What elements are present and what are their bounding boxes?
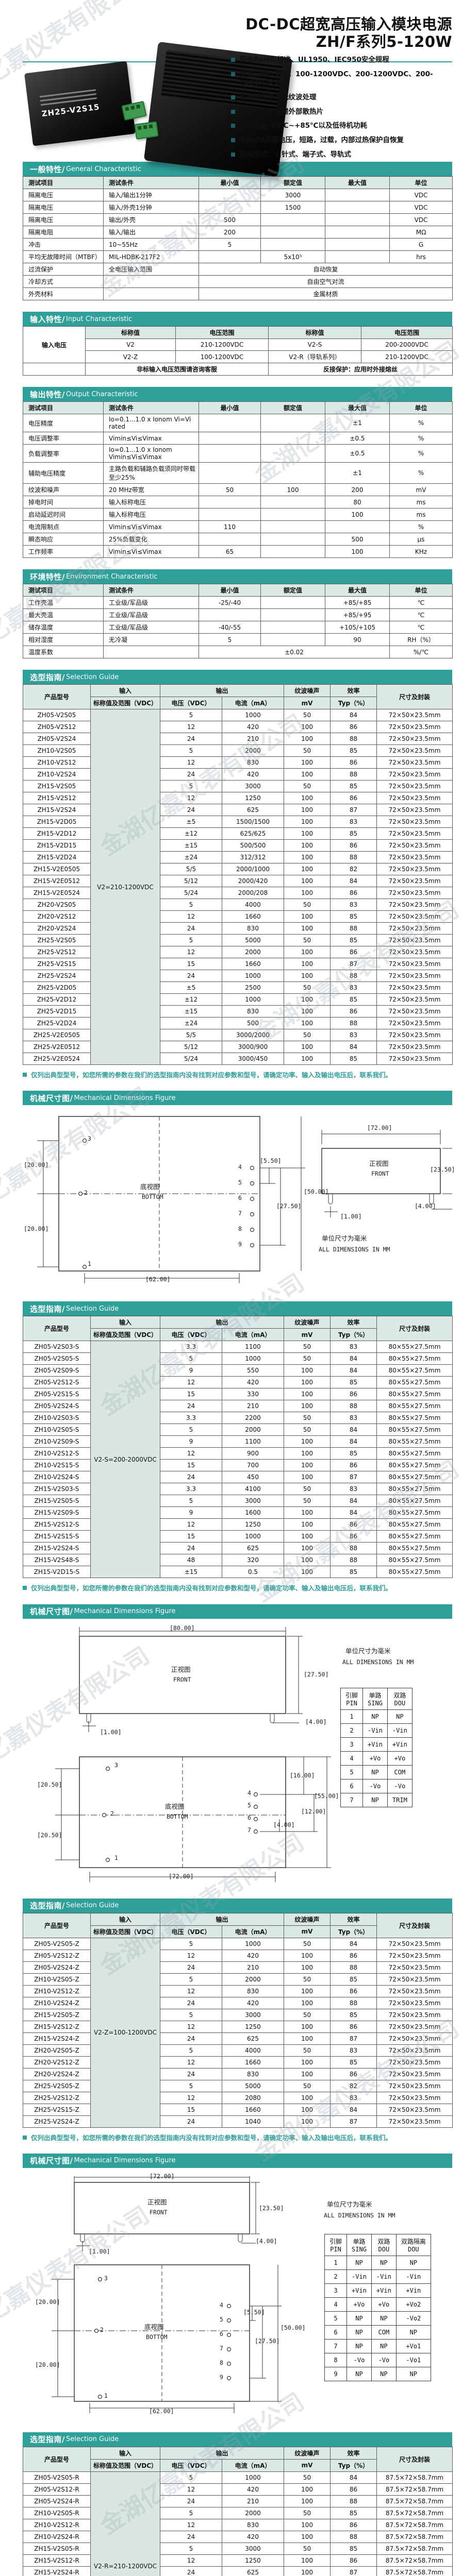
product-row: ZH25-V2D15±158301008672×50×23.5mm (23, 1006, 453, 1018)
table-cell: 输入/外壳1分钟 (104, 201, 199, 214)
table-cell: 15 (160, 1388, 222, 1400)
table-row: 过流保护全电压输入范围自动恢复 (23, 263, 453, 276)
table-cell: 24 (160, 923, 222, 935)
product-row: ZH15-V2S05-R53000508587.5×72×58.7mm (23, 2543, 453, 2554)
table-cell: 830 (222, 757, 284, 769)
table-cell: 12 (160, 2092, 222, 2104)
dim-label: [27.50] (276, 1203, 301, 1210)
table-cell: 12 (160, 946, 222, 958)
table-cell: 320 (222, 1554, 284, 1566)
pin-cell: 8 (325, 2353, 347, 2367)
column-header: 效率 (331, 1913, 377, 1925)
table-cell: 温度系数 (23, 646, 104, 658)
table-cell: 12 (160, 1985, 222, 1997)
column-header: 引脚PIN (325, 2234, 347, 2256)
dim-label: [4.00] (415, 1203, 436, 1210)
section-title-en: Selection Guide (66, 1902, 119, 1909)
column-header: 单位 (390, 402, 453, 414)
pin-row: 9NPNPNP (325, 2367, 431, 2381)
table-cell: 100 (284, 1519, 331, 1531)
pin-cell: 2 (325, 2269, 347, 2283)
model-cell: ZH25-V2D05 (23, 982, 91, 994)
table-row: 启动延迟时间输入标称电压100ms (23, 509, 453, 521)
table-cell: 100 (284, 1543, 331, 1554)
pin-row: 7NPTRIM (341, 1793, 412, 1807)
table-cell: 110 (199, 521, 261, 533)
table-row: 电流限制点Vimin≤Vi≤Vimax110% (23, 521, 453, 533)
table-cell: 87.5×72×58.7mm (377, 2554, 453, 2566)
product-row: ZH15-V2S05-S53000508480×55×27.5mm (23, 1495, 453, 1507)
product-row: ZH05-V2S05-ZV2-Z=100-1200VDC51000508472×… (23, 1938, 453, 1950)
column-header: mV (284, 1329, 331, 1341)
dim-label: 5 (247, 1802, 251, 1809)
table-cell: ±5 (160, 982, 222, 994)
table-cell: 72×50×23.5mm (377, 2104, 453, 2115)
dim-label: 2 (84, 1190, 88, 1196)
feature-text: 自然冷却，无需外部散热片 (240, 108, 323, 116)
table-cell (23, 363, 86, 376)
model-cell: ZH05-V2S03-S (23, 1341, 91, 1353)
column-header: 产品型号 (23, 2447, 91, 2471)
table-cell: 12 (160, 2021, 222, 2032)
table-cell: 88 (331, 1997, 377, 2009)
section-header-output: 输出特性/ Output Characteristic (23, 387, 452, 401)
table-cell: 100 (284, 2021, 331, 2032)
dim-label: [23.50] (430, 1166, 455, 1173)
input-characteristic-table: 输入电压标称值电压范围标称值电压范围V2210-1200VDCV2-S200-2… (23, 326, 453, 376)
dim-label: 正视图 (171, 1666, 191, 1673)
table-cell: 80×55×27.5mm (377, 1460, 453, 1471)
table-cell: ±0.5 (325, 445, 390, 463)
dim-label: FRONT (173, 1676, 191, 1683)
table-cell: 负载调整率 (23, 445, 104, 463)
section-header-input: 输入特性/ Input Characteristic (23, 312, 452, 326)
column-header: 标称值及范围（VDC） (91, 697, 160, 709)
pin-cell: +Vin (396, 2283, 431, 2297)
datasheet-page: DC-DC超宽高压输入模块电源 ZH/F系列5-120W ZH25-V2S15 … (0, 0, 462, 2576)
table-cell: 87.5×72×58.7mm (377, 2495, 453, 2507)
table-cell: V2-S (269, 339, 361, 351)
model-cell: ZH20-V2S12 (23, 911, 91, 923)
section-header-selection-3: 选型指南/ Selection Guide (23, 1899, 452, 1913)
table-row: V2210-1200VDCV2-S200-2000VDC (23, 339, 453, 351)
table-cell: 9 (160, 1365, 222, 1377)
feature-item: 高转换效率和低纹波处理 (231, 93, 454, 102)
table-cell: 88 (331, 733, 377, 745)
table-cell: 1000 (222, 2471, 284, 2483)
table-cell: 5/5 (160, 863, 222, 875)
column-header: 测试条件 (104, 584, 199, 597)
table-cell: 工业级/军品级 (104, 609, 199, 621)
pin-cell: 4 (325, 2297, 347, 2311)
table-cell: 200 (199, 226, 261, 239)
table-cell: ±1 (325, 463, 390, 484)
table-cell: 金属材质 (199, 288, 453, 300)
table-row: 瞬态响应25%负载变化500μs (23, 533, 453, 546)
pin-row: 3+Vin+Vin+Vin (325, 2283, 431, 2297)
table-cell: 72×50×23.5mm (377, 709, 453, 721)
table-cell (199, 533, 261, 546)
table-cell: 72×50×23.5mm (377, 2032, 453, 2044)
table-cell: 12 (160, 911, 222, 923)
dim-label: 9 (238, 1241, 242, 1248)
model-cell: ZH10-V2S24 (23, 769, 91, 781)
table-cell: 5/5 (160, 1029, 222, 1041)
table-row: 电压精度Io=0.1...1.0 x Ionom Vi=Vi rated±1% (23, 414, 453, 432)
dim-label: 4 (238, 1164, 242, 1171)
table-cell: 100 (284, 1460, 331, 1471)
dim-label: [20.00] (35, 2299, 60, 2306)
table-cell: 100 (284, 1566, 331, 1578)
table-cell: ℃ (390, 597, 453, 609)
pin-cell: NP (347, 2339, 372, 2353)
table-cell (325, 189, 390, 201)
model-cell: ZH05-V2S05-R (23, 2471, 91, 2483)
table-cell: 625 (222, 804, 284, 816)
table-cell: 80×55×27.5mm (377, 1554, 453, 1566)
table-cell (261, 546, 325, 558)
table-cell: 85 (331, 2543, 377, 2554)
pin-cell: 6 (325, 2325, 347, 2339)
table-cell: ±12 (160, 994, 222, 1006)
table-cell: 9 (160, 1436, 222, 1448)
table-cell: 100 (284, 721, 331, 733)
table-cell: 隔离电压 (23, 189, 104, 201)
model-cell: ZH15-V2S05-Z (23, 2009, 91, 2021)
dim-label: [20.50] (37, 1832, 62, 1839)
table-cell: 50 (284, 935, 331, 946)
selection-guide-table-4: 产品型号输入输出纹波噪声效率尺寸及封装标称值及范围（VDC）电压（VDC）电流（… (23, 2447, 453, 2576)
table-cell: 72×50×23.5mm (377, 1041, 453, 1053)
table-cell: 80×55×27.5mm (377, 1424, 453, 1436)
model-cell: ZH10-V2S09-S (23, 1436, 91, 1448)
table-cell: 87 (331, 804, 377, 816)
table-cell: 80×55×27.5mm (377, 1543, 453, 1554)
model-cell: ZH20-V2S12-Z (23, 2056, 91, 2068)
table-cell: 83 (331, 1341, 377, 1353)
table-cell: ±0.02 (199, 646, 390, 658)
table-cell: 3000/900 (222, 1041, 284, 1053)
product-row: ZH20-V2S12-Z1216601008572×50×23.5mm (23, 2056, 453, 2068)
table-cell: 50 (284, 1341, 331, 1353)
table-cell: 420 (222, 721, 284, 733)
pin-cell: -Vin (347, 2269, 372, 2283)
model-cell: ZH25-V2S12 (23, 946, 91, 958)
dim-label: [20.50] (37, 1782, 62, 1788)
table-cell (261, 496, 325, 509)
table-cell: 72×50×23.5mm (377, 2044, 453, 2056)
table-cell: 自由空气对流 (199, 276, 453, 288)
table-cell: 88 (331, 1554, 377, 1566)
pin-cell: 6 (341, 1779, 363, 1793)
pin-row: 3+Vin+Vin (341, 1737, 412, 1751)
column-header: 单位 (390, 584, 453, 597)
table-cell: 85 (331, 828, 377, 840)
dim-label: ALL DIMENSIONS IN MM (319, 1246, 390, 1253)
pin-definition-table: 引脚PIN单路SING双路DOU双路隔离DOU1NPNPNP2-Vin-Vin-… (324, 2234, 431, 2381)
pin-cell: +Vo1 (396, 2339, 431, 2353)
table-cell: 2000 (222, 946, 284, 958)
table-cell: 84 (331, 1507, 377, 1519)
table-cell: 100 (284, 2483, 331, 2495)
table-cell: 85 (331, 1566, 377, 1578)
column-header: 效率 (331, 685, 377, 697)
dim-label: 3 (114, 1762, 118, 1769)
table-cell: 72×50×23.5mm (377, 1961, 453, 1973)
pin-cell: NP (396, 2325, 431, 2339)
table-cell: 80×55×27.5mm (377, 1377, 453, 1388)
table-cell: 72×50×23.5mm (377, 2115, 453, 2127)
dim-label: [20.00] (24, 1226, 48, 1232)
table-cell: 86 (331, 2519, 377, 2531)
table-cell: 72×50×23.5mm (377, 911, 453, 923)
table-cell: 1100 (222, 1341, 284, 1353)
table-cell: 全电压输入范围 (104, 263, 199, 276)
table-cell: 87.5×72×58.7mm (377, 2483, 453, 2495)
section-header-mech-3: 机械尺寸图/ Mechanical Dimensions Figure (23, 2154, 452, 2168)
table-cell: 主路负载和辅路负载须同时带载至少25% (104, 463, 199, 484)
product-row: ZH15-V2S48-S483201008880×55×27.5mm (23, 1554, 453, 1566)
table-cell: 72×50×23.5mm (377, 745, 453, 757)
pin-cell: NP (387, 1709, 412, 1723)
bullet-square-icon (23, 1073, 27, 1077)
section-header-mech-1: 机械尺寸图/ Mechanical Dimensions Figure (23, 1091, 452, 1105)
dim-label: 3 (88, 1136, 91, 1142)
table-row: 外壳材料金属材质 (23, 288, 453, 300)
column-header: 输出 (160, 2447, 284, 2459)
column-header: 测试项目 (23, 177, 104, 189)
table-cell (199, 463, 261, 484)
product-row: ZH25-V2S15-Z1516601008472×50×23.5mm (23, 2104, 453, 2115)
table-cell (261, 621, 325, 634)
table-cell: 工业级/军品级 (104, 621, 199, 634)
table-cell: 1000 (222, 1938, 284, 1950)
pin-cell: NP (396, 2367, 431, 2381)
table-cell: 1000 (222, 970, 284, 982)
table-cell: 5 (160, 709, 222, 721)
section-title-en: Input Characteristic (66, 315, 132, 323)
product-row: ZH10-V2S05-S52000508480×55×27.5mm (23, 1424, 453, 1436)
dim-label: [27.50] (304, 1671, 328, 1678)
table-cell: 5 (160, 899, 222, 911)
table-cell: 12 (160, 2483, 222, 2495)
table-cell: 100 (284, 1985, 331, 1997)
table-cell: 420 (222, 1997, 284, 2009)
table-cell: 100 (284, 923, 331, 935)
table-cell: 输出/外壳 (104, 214, 199, 226)
section-title-en: Environment Characteristic (66, 573, 158, 581)
product-row: ZH10-V2S12-S129001008580×55×27.5mm (23, 1448, 453, 1460)
table-cell: 辅助电压精度 (23, 463, 104, 484)
model-cell: ZH05-V2S12-S (23, 1377, 91, 1388)
model-cell: ZH10-V2S05-R (23, 2507, 91, 2519)
table-cell: 5 (199, 634, 261, 646)
table-cell: 100 (284, 2531, 331, 2543)
section-title-cn: 选型指南/ (30, 672, 65, 683)
model-cell: ZH10-V2S05 (23, 745, 91, 757)
table-cell: 80×55×27.5mm (377, 1471, 453, 1483)
product-row: ZH05-V2S05V2=210-1200VDC51000508472×50×2… (23, 709, 453, 721)
model-cell: ZH15-V2E0512 (23, 875, 91, 887)
pin-cell: 1 (325, 2256, 347, 2269)
model-cell: ZH10-V2S24-Z (23, 1997, 91, 2009)
table-cell: 50 (284, 2044, 331, 2056)
section-title-en: Mechanical Dimensions Figure (74, 1607, 175, 1615)
table-cell: 86 (331, 1950, 377, 1961)
table-cell: 12 (160, 757, 222, 769)
feature-text: 3000V隔离电压，短路，过载，内部过热保护自恢复 (240, 136, 404, 145)
dim-label: [5.50] (260, 1158, 282, 1164)
pin-cell: NP (347, 2367, 372, 2381)
header-row: 引脚PIN单路SING双路DOU (341, 1688, 412, 1709)
section-header-selection-1: 选型指南/ Selection Guide (23, 670, 452, 684)
table-cell: 5 (160, 2507, 222, 2519)
table-cell: 87.5×72×58.7mm (377, 2543, 453, 2554)
table-cell: 4000 (222, 2044, 284, 2056)
model-cell: ZH05-V2S24-R (23, 2495, 91, 2507)
column-header: Typ（%） (331, 1329, 377, 1341)
table-cell: 1100 (222, 1436, 284, 1448)
table-cell: 87 (331, 2115, 377, 2127)
product-row: ZH25-V2S24-Z2410401008772×50×23.5mm (23, 2115, 453, 2127)
table-cell: 100 (284, 852, 331, 863)
pin-cell: 5 (341, 1765, 363, 1779)
dim-label: 2 (110, 1810, 114, 1817)
module-label-block: ZH25-V2S15 (39, 87, 100, 118)
table-cell: 12 (160, 1448, 222, 1460)
table-cell: 72×50×23.5mm (377, 970, 453, 982)
table-cell: 冲击 (23, 239, 104, 251)
feature-text: 宽电压输入范围：100-1200VDC、200-1200VDC、200-2000… (240, 70, 454, 88)
dim-label: [23.50] (259, 2205, 284, 2212)
table-cell: 50 (284, 1495, 331, 1507)
table-cell: 72×50×23.5mm (377, 899, 453, 911)
pin-cell: -Vo1 (396, 2353, 431, 2367)
table-cell: 1000 (222, 994, 284, 1006)
table-cell: 830 (222, 1006, 284, 1018)
table-row: 负载调整率Io=0.1...1.0 x Ionom Vimin≤Vi≤Vimax… (23, 445, 453, 463)
row-label: 输入电压 (23, 327, 86, 363)
table-cell: 72×50×23.5mm (377, 816, 453, 828)
header-row: 输入电压标称值电压范围标称值电压范围 (23, 327, 453, 339)
table-cell: 330 (222, 1388, 284, 1400)
table-cell: 50 (284, 2507, 331, 2519)
section-title-cn: 机械尺寸图/ (30, 2155, 73, 2166)
dim-label: [72.00] (367, 1125, 392, 1131)
pin-cell: NP (363, 1793, 388, 1807)
model-cell: ZH15-V2S12-Z (23, 2021, 91, 2032)
table-cell: 88 (331, 1961, 377, 1973)
table-cell: 50 (284, 1412, 331, 1424)
table-cell: 24 (160, 2068, 222, 2080)
column-header: 双路DOU (371, 2234, 396, 2256)
pin-row: 5NPCOM (341, 1765, 412, 1779)
table-cell: 3.3 (160, 1341, 222, 1353)
table-cell: 100 (284, 804, 331, 816)
product-row: ZH05-V2S24-S242101008880×55×27.5mm (23, 1400, 453, 1412)
table-cell: 24 (160, 769, 222, 781)
table-cell: 5 (160, 1938, 222, 1950)
table-cell: 100 (284, 816, 331, 828)
table-cell: 420 (222, 1950, 284, 1961)
dim-label: 2 (100, 2327, 104, 2333)
table-cell: +85/+85 (325, 597, 390, 609)
pin-cell: NP (363, 1709, 388, 1723)
dim-label: FRONT (371, 1171, 389, 1177)
product-row: ZH15-V2S24246251008772×50×23.5mm (23, 804, 453, 816)
table-cell (199, 251, 261, 263)
pin-cell: -Vin (371, 2269, 396, 2283)
dim-label: 单位尺寸为毫米 (327, 2201, 372, 2208)
dim-label: 3 (104, 2275, 108, 2282)
section-title-en: Output Characteristic (66, 391, 138, 398)
feature-item: 3000V隔离电压，短路，过载，内部过热保护自恢复 (231, 136, 454, 145)
table-cell: 50 (284, 1353, 331, 1365)
model-cell: ZH10-V2S03-S (23, 1412, 91, 1424)
table-cell: 50 (284, 1029, 331, 1041)
column-header: 标称值及范围（VDC） (91, 2459, 160, 2471)
product-row: ZH15-V2S03-S3.34100508380×55×27.5mm (23, 1483, 453, 1495)
table-row: 冷却方式自由空气对流 (23, 276, 453, 288)
table-cell (199, 201, 261, 214)
model-cell: ZH15-V2S15-S (23, 1531, 91, 1543)
model-cell: ZH20-V2S24-Z (23, 2068, 91, 2080)
table-cell: 100 (284, 911, 331, 923)
table-cell: 85 (331, 2056, 377, 2068)
column-header: 效率 (331, 1316, 377, 1329)
product-row: ZH15-V2E05245/242000/2081008672×50×23.5m… (23, 887, 453, 899)
product-row: ZH10-V2S05-Z52000508572×50×23.5mm (23, 1973, 453, 1985)
column-header: 尺寸及封装 (377, 2447, 453, 2471)
table-cell: 4000 (222, 899, 284, 911)
column-header: 单位 (390, 177, 453, 189)
table-cell: 平均无故障时间（MTBF） (23, 251, 104, 263)
header-row: 产品型号输入输出纹波噪声效率尺寸及封装 (23, 2447, 453, 2459)
table-cell: 500 (222, 1018, 284, 1029)
product-row: ZH25-V2E05125/123000/9001008472×50×23.5m… (23, 1041, 453, 1053)
table-cell: 24 (160, 1997, 222, 2009)
table-cell (261, 533, 325, 546)
product-row: ZH10-V2S24244201008872×50×23.5mm (23, 769, 453, 781)
table-cell: 72×50×23.5mm (377, 757, 453, 769)
bullet-square-icon (231, 152, 235, 157)
table-cell: 83 (331, 2092, 377, 2104)
table-cell: 72×50×23.5mm (377, 863, 453, 875)
model-cell: ZH25-V2S12-Z (23, 2092, 91, 2104)
dim-label: 5 (220, 2316, 223, 2323)
table-cell: 72×50×23.5mm (377, 852, 453, 863)
model-cell: ZH15-V2D24 (23, 852, 91, 863)
dimension-drawing (23, 1112, 452, 1290)
table-cell (104, 646, 199, 658)
table-cell: 100 (284, 2092, 331, 2104)
table-cell: 50 (284, 781, 331, 792)
bullet-square-icon (231, 110, 235, 114)
table-cell: ±15 (160, 1006, 222, 1018)
table-cell: +85/+95 (325, 609, 390, 621)
pin-row: 6NPCOMNP (325, 2325, 431, 2339)
table-cell: 80×55×27.5mm (377, 1353, 453, 1365)
model-cell: ZH10-V2S24-R (23, 2531, 91, 2543)
table-row: 工作壳温工业级/军品级-25/-40+85/+85℃ (23, 597, 453, 609)
dim-label: [4.00] (256, 2238, 277, 2245)
table-cell (199, 414, 261, 432)
table-cell: 88 (331, 852, 377, 863)
dim-label: 底视图 (140, 1183, 160, 1191)
model-cell: ZH05-V2S24-Z (23, 1961, 91, 1973)
table-cell: 2000/1000 (222, 863, 284, 875)
pin-cell: NP (371, 2367, 396, 2381)
